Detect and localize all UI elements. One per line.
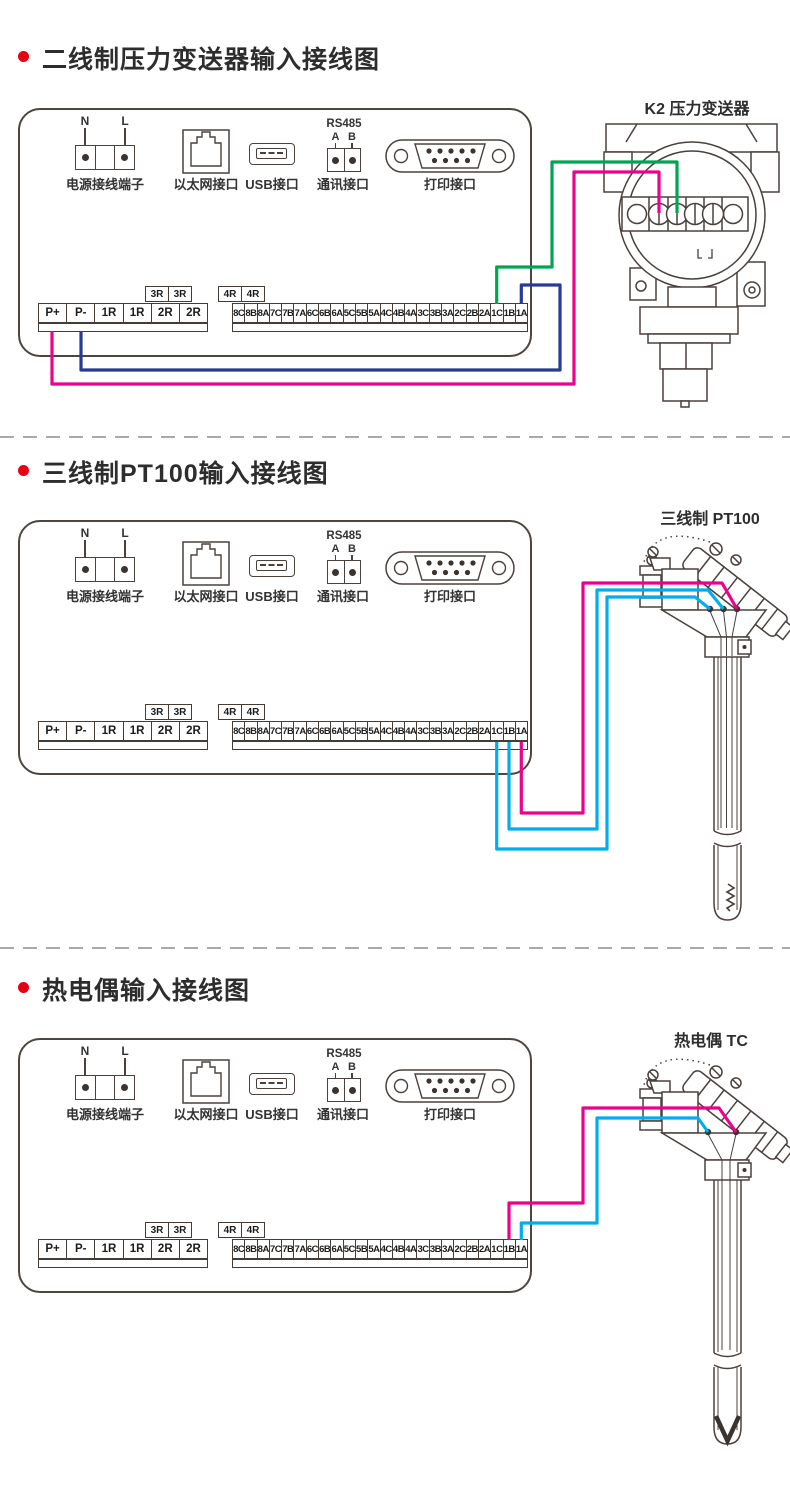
wire-s3-magenta	[509, 1108, 736, 1240]
pressure-transmitter-drawing	[604, 124, 779, 407]
usb-port-icon	[249, 555, 295, 577]
relay-terminal-group-3r: 3R3R	[145, 286, 192, 302]
wire-s2-cyan-1b	[509, 590, 724, 829]
terminal-cell: 5C	[343, 1239, 356, 1259]
terminal-cell: 5A	[367, 1239, 380, 1259]
terminal-cell: 2B	[466, 721, 479, 741]
terminal-cell: 5B	[355, 1239, 368, 1259]
terminal-cell: 7B	[281, 721, 294, 741]
terminal-cell: 4B	[392, 303, 405, 323]
terminal-cell: 4B	[392, 721, 405, 741]
terminal-cell: 5B	[355, 721, 368, 741]
ethernet-port-label: 以太网接口	[173, 1104, 238, 1123]
printer-port-icon	[385, 139, 515, 173]
terminal-cell: 3B	[429, 303, 442, 323]
terminal-cell: 6C	[306, 1239, 319, 1259]
comm-port-label: 通讯接口	[317, 174, 369, 193]
terminal-cell: 7A	[293, 1239, 306, 1259]
printer-port-label: 打印接口	[424, 1104, 476, 1123]
terminal-cell: 3A	[441, 721, 454, 741]
terminal-cell: 8C	[232, 721, 245, 741]
power-l-label: L	[121, 1044, 128, 1058]
relay-terminal-group-4r: 4R4R	[218, 704, 265, 720]
terminal-cell: 2A	[478, 721, 491, 741]
terminal-cell: 8A	[257, 1239, 270, 1259]
comm-port-label: 通讯接口	[317, 1104, 369, 1123]
section2-device-label: 三线制 PT100	[625, 505, 790, 529]
power-terminal-screw	[76, 558, 95, 581]
comm-terminal-block	[327, 148, 361, 172]
ethernet-port-icon	[182, 129, 230, 174]
terminal-cell: 4A	[404, 1239, 417, 1259]
usb-slot	[256, 1078, 287, 1089]
power-terminal-block	[75, 145, 135, 170]
terminal-cell: P+	[38, 1239, 67, 1259]
terminal-cell: 6B	[318, 303, 331, 323]
terminal-cell: 6A	[330, 303, 343, 323]
terminal-cell: 8B	[244, 303, 257, 323]
terminal-strip-base	[38, 1259, 208, 1268]
power-terminal-screw	[114, 558, 134, 581]
terminal-cell: 7C	[269, 303, 282, 323]
terminal-cell: 1A	[515, 303, 528, 323]
wire-s2-magenta	[521, 583, 737, 813]
terminal-cell: 3R	[145, 1222, 169, 1238]
terminal-cell: 3A	[441, 1239, 454, 1259]
printer-port-label: 打印接口	[424, 586, 476, 605]
printer-port-icon	[385, 551, 515, 585]
terminal-cell: 2R	[151, 303, 180, 323]
terminal-cell: 1R	[94, 1239, 123, 1259]
input-channel-terminal-strip: 8C8B8A7C7B7A6C6B6A5C5B5A4C4B4A3C3B3A2C2B…	[232, 1239, 528, 1259]
section3-title: 热电偶输入接线图	[42, 971, 250, 1007]
bullet-icon	[18, 982, 29, 993]
ethernet-port-label: 以太网接口	[173, 586, 238, 605]
terminal-cell: 6C	[306, 303, 319, 323]
usb-port-label: USB接口	[245, 174, 298, 193]
comm-b-label: B	[348, 1061, 356, 1073]
terminal-cell: 4A	[404, 303, 417, 323]
terminal-cell: 1B	[503, 721, 516, 741]
printer-port-icon	[385, 1069, 515, 1103]
usb-port-label: USB接口	[245, 586, 298, 605]
printer-port-label: 打印接口	[424, 174, 476, 193]
terminal-strip-base	[232, 741, 528, 750]
terminal-cell: 1A	[515, 1239, 528, 1259]
terminal-cell: 1A	[515, 721, 528, 741]
terminal-strip-base	[38, 323, 208, 332]
power-terminal-screw	[76, 146, 95, 169]
relay-terminal-group-4r: 4R4R	[218, 1222, 265, 1238]
terminal-cell: 4R	[218, 704, 242, 720]
usb-port-icon	[249, 143, 295, 165]
power-l-label: L	[121, 526, 128, 540]
comm-terminal-screw	[328, 149, 344, 171]
usb-slot	[256, 560, 287, 571]
power-n-lead	[84, 540, 86, 557]
power-n-label: N	[81, 1044, 90, 1058]
power-terminal-screw	[76, 1076, 95, 1099]
terminal-cell: 7C	[269, 1239, 282, 1259]
power-terminal-label: 电源接线端子	[66, 586, 144, 605]
wire-s3-cyan	[521, 1118, 708, 1240]
terminal-cell: 3B	[429, 1239, 442, 1259]
power-signal-terminal-strip: P+P-1R1R2R2R	[38, 1239, 208, 1259]
comm-a-label: A	[332, 1061, 340, 1073]
power-l-lead	[124, 1058, 126, 1075]
terminal-cell: 2C	[453, 303, 466, 323]
terminal-cell: 8A	[257, 721, 270, 741]
input-channel-terminal-strip: 8C8B8A7C7B7A6C6B6A5C5B5A4C4B4A3C3B3A2C2B…	[232, 303, 528, 323]
terminal-cell: 7C	[269, 721, 282, 741]
section1-device-label: K2 压力变送器	[612, 95, 782, 119]
terminal-cell: 3C	[416, 1239, 429, 1259]
comm-terminal-screw	[344, 1079, 361, 1101]
power-terminal-cell	[95, 558, 115, 581]
terminal-cell: 1R	[94, 303, 123, 323]
comm-a-label: A	[332, 131, 340, 143]
terminal-cell: 2A	[478, 1239, 491, 1259]
terminal-cell: 8C	[232, 303, 245, 323]
power-terminal-label: 电源接线端子	[66, 1104, 144, 1123]
terminal-cell: 2R	[151, 721, 180, 741]
terminal-cell: 4R	[241, 704, 265, 720]
terminal-cell: 8A	[257, 303, 270, 323]
recorder-panel-3: N L 电源接线端子 以太网接口 USB接口 RS485 A B 通讯接口 打印…	[18, 1038, 532, 1293]
terminal-cell: 6C	[306, 721, 319, 741]
comm-b-label: B	[348, 131, 356, 143]
terminal-cell: 2C	[453, 1239, 466, 1259]
terminal-strip-base	[232, 323, 528, 332]
power-terminal-block	[75, 1075, 135, 1100]
terminal-cell: 3A	[441, 303, 454, 323]
terminal-cell: 6A	[330, 721, 343, 741]
terminal-cell: 7A	[293, 721, 306, 741]
comm-terminal-block	[327, 1078, 361, 1102]
terminal-cell: 7B	[281, 1239, 294, 1259]
section-divider	[0, 436, 790, 438]
section-divider	[0, 947, 790, 949]
ethernet-port-icon	[182, 1059, 230, 1104]
terminal-cell: 6B	[318, 721, 331, 741]
power-l-lead	[124, 128, 126, 145]
terminal-strip-base	[38, 741, 208, 750]
terminal-cell: 1R	[123, 721, 152, 741]
power-n-lead	[84, 128, 86, 145]
power-terminal-screw	[114, 146, 134, 169]
power-terminal-cell	[95, 1076, 115, 1099]
bullet-icon	[18, 465, 29, 476]
terminal-cell: 3C	[416, 721, 429, 741]
terminal-cell: 3R	[168, 286, 192, 302]
usb-port-icon	[249, 1073, 295, 1095]
terminal-cell: 3R	[168, 704, 192, 720]
terminal-cell: 1B	[503, 303, 516, 323]
transmitter-phase-label: B	[673, 246, 682, 260]
rs485-label: RS485	[326, 530, 361, 542]
terminal-cell: 2B	[466, 1239, 479, 1259]
section1-title: 二线制压力变送器输入接线图	[42, 40, 380, 76]
transmitter-polarity-label: +	[655, 233, 662, 247]
transmitter-phase-label: A	[701, 246, 710, 260]
comm-terminal-screw	[344, 149, 361, 171]
terminal-cell: 5A	[367, 721, 380, 741]
terminal-cell: 1R	[123, 1239, 152, 1259]
terminal-cell: P+	[38, 303, 67, 323]
terminal-cell: P-	[66, 721, 95, 741]
terminal-cell: 2R	[179, 303, 208, 323]
comm-terminal-block	[327, 560, 361, 584]
terminal-cell: 8B	[244, 1239, 257, 1259]
terminal-cell: 7B	[281, 303, 294, 323]
terminal-cell: 1C	[490, 1239, 503, 1259]
power-terminal-screw	[114, 1076, 134, 1099]
terminal-cell: 3C	[416, 303, 429, 323]
terminal-cell: 1R	[123, 303, 152, 323]
terminal-cell: 2C	[453, 721, 466, 741]
terminal-cell: 2R	[179, 1239, 208, 1259]
transmitter-polarity-label: −	[709, 233, 716, 247]
terminal-cell: 8B	[244, 721, 257, 741]
rs485-label: RS485	[326, 1048, 361, 1060]
comm-b-label: B	[348, 543, 356, 555]
terminal-cell: 2R	[179, 721, 208, 741]
terminal-cell: 6A	[330, 1239, 343, 1259]
terminal-cell: 4C	[380, 1239, 393, 1259]
input-channel-terminal-strip: 8C8B8A7C7B7A6C6B6A5C5B5A4C4B4A3C3B3A2C2B…	[232, 721, 528, 741]
terminal-cell: P+	[38, 721, 67, 741]
power-terminal-block	[75, 557, 135, 582]
terminal-cell: 1R	[94, 721, 123, 741]
power-signal-terminal-strip: P+P-1R1R2R2R	[38, 721, 208, 741]
bullet-icon	[18, 51, 29, 62]
ethernet-port-icon	[182, 541, 230, 586]
terminal-cell: 6B	[318, 1239, 331, 1259]
recorder-panel-1: N L 电源接线端子 以太网接口 USB接口 RS485 A B 通讯接口 打印…	[18, 108, 532, 357]
terminal-cell: 1B	[503, 1239, 516, 1259]
terminal-cell: 3R	[145, 704, 169, 720]
rs485-label: RS485	[326, 118, 361, 130]
terminal-cell: 5C	[343, 303, 356, 323]
terminal-cell: 1C	[490, 721, 503, 741]
power-signal-terminal-strip: P+P-1R1R2R2R	[38, 303, 208, 323]
power-terminal-cell	[95, 146, 115, 169]
terminal-cell: P-	[66, 1239, 95, 1259]
ethernet-port-label: 以太网接口	[173, 174, 238, 193]
terminal-cell: 2B	[466, 303, 479, 323]
terminal-cell: 4R	[218, 1222, 242, 1238]
terminal-cell: 2R	[151, 1239, 180, 1259]
relay-terminal-group-3r: 3R3R	[145, 704, 192, 720]
terminal-cell: 8C	[232, 1239, 245, 1259]
terminal-cell: 4R	[241, 286, 265, 302]
comm-terminal-screw	[328, 561, 344, 583]
terminal-cell: 3B	[429, 721, 442, 741]
pt100-sensor-drawing	[640, 536, 790, 920]
transmitter-polarity-label: −	[673, 233, 680, 247]
terminal-cell: 3R	[168, 1222, 192, 1238]
terminal-cell: 4B	[392, 1239, 405, 1259]
usb-port-label: USB接口	[245, 1104, 298, 1123]
comm-a-label: A	[332, 543, 340, 555]
terminal-cell: 4A	[404, 721, 417, 741]
terminal-cell: 4R	[241, 1222, 265, 1238]
transmitter-phase-label: A	[655, 246, 664, 260]
terminal-cell: 5B	[355, 303, 368, 323]
power-l-label: L	[121, 114, 128, 128]
terminal-cell: 1C	[490, 303, 503, 323]
transmitter-polarity-label: +	[691, 233, 698, 247]
usb-slot	[256, 148, 287, 159]
thermocouple-sensor-drawing	[640, 1059, 790, 1444]
relay-terminal-group-4r: 4R4R	[218, 286, 265, 302]
terminal-cell: 2A	[478, 303, 491, 323]
power-n-label: N	[81, 526, 90, 540]
terminal-cell: 4C	[380, 303, 393, 323]
power-l-lead	[124, 540, 126, 557]
relay-terminal-group-3r: 3R3R	[145, 1222, 192, 1238]
comm-port-label: 通讯接口	[317, 586, 369, 605]
terminal-cell: 4C	[380, 721, 393, 741]
comm-terminal-screw	[344, 561, 361, 583]
terminal-cell: 4R	[218, 286, 242, 302]
comm-terminal-screw	[328, 1079, 344, 1101]
terminal-cell: 7A	[293, 303, 306, 323]
section2-title: 三线制PT100输入接线图	[42, 454, 329, 490]
power-n-label: N	[81, 114, 90, 128]
wiring-diagram-document: 二线制压力变送器输入接线图 K2 压力变送器 三线制PT100输入接线图 三线制…	[0, 0, 790, 1487]
power-terminal-label: 电源接线端子	[66, 174, 144, 193]
terminal-cell: P-	[66, 303, 95, 323]
section3-device-label: 热电偶 TC	[626, 1027, 790, 1051]
terminal-cell: 5A	[367, 303, 380, 323]
terminal-cell: 5C	[343, 721, 356, 741]
terminal-strip-base	[232, 1259, 528, 1268]
terminal-cell: 3R	[145, 286, 169, 302]
power-n-lead	[84, 1058, 86, 1075]
recorder-panel-2: N L 电源接线端子 以太网接口 USB接口 RS485 A B 通讯接口 打印…	[18, 520, 532, 775]
